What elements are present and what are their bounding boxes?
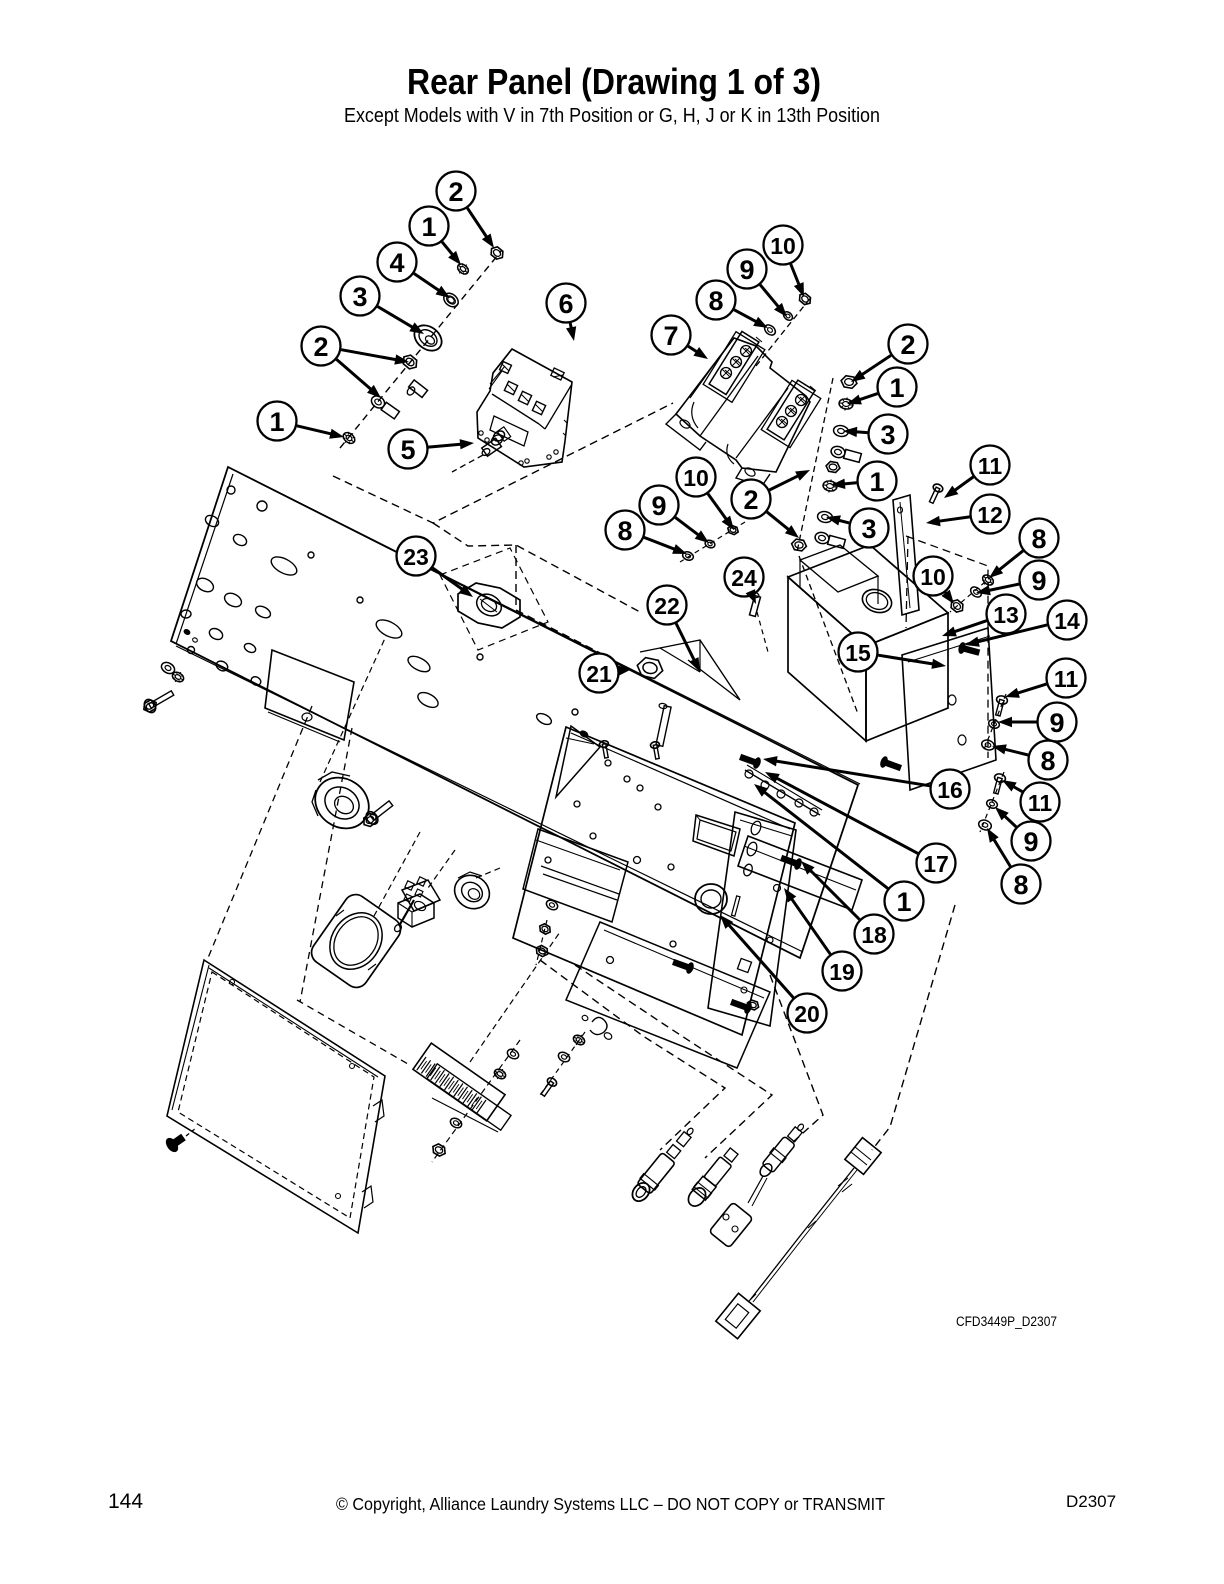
svg-text:10: 10 — [920, 564, 946, 590]
svg-text:D2307: D2307 — [1066, 1492, 1116, 1511]
svg-text:1: 1 — [421, 212, 436, 242]
svg-text:17: 17 — [923, 851, 949, 877]
svg-text:2: 2 — [743, 485, 758, 515]
svg-text:11: 11 — [978, 453, 1003, 479]
svg-text:8: 8 — [1040, 746, 1055, 776]
svg-text:9: 9 — [1023, 827, 1038, 857]
svg-text:4: 4 — [389, 248, 404, 278]
svg-text:CFD3449P_D2307: CFD3449P_D2307 — [956, 1314, 1057, 1329]
svg-text:23: 23 — [403, 544, 429, 570]
svg-text:24: 24 — [731, 565, 757, 591]
svg-text:6: 6 — [558, 289, 573, 319]
svg-text:Rear Panel (Drawing 1 of 3): Rear Panel (Drawing 1 of 3) — [407, 61, 821, 102]
svg-text:14: 14 — [1054, 608, 1080, 634]
svg-text:3: 3 — [861, 514, 876, 544]
svg-text:3: 3 — [352, 282, 367, 312]
svg-text:19: 19 — [829, 959, 855, 985]
svg-text:9: 9 — [739, 255, 754, 285]
svg-text:2: 2 — [448, 177, 463, 207]
svg-text:13: 13 — [993, 602, 1019, 628]
svg-text:11: 11 — [1028, 790, 1053, 816]
svg-text:8: 8 — [617, 516, 632, 546]
svg-text:2: 2 — [313, 332, 328, 362]
svg-text:8: 8 — [1031, 524, 1046, 554]
svg-text:3: 3 — [880, 420, 895, 450]
svg-text:Except Models with V in 7th Po: Except Models with V in 7th Position or … — [344, 105, 880, 127]
svg-text:© Copyright, Alliance Laundry: © Copyright, Alliance Laundry Systems LL… — [336, 1494, 885, 1514]
svg-text:20: 20 — [794, 1001, 820, 1027]
svg-text:7: 7 — [663, 321, 678, 351]
svg-text:8: 8 — [708, 286, 723, 316]
svg-text:5: 5 — [400, 435, 415, 465]
svg-text:144: 144 — [108, 1490, 143, 1513]
svg-text:1: 1 — [889, 373, 904, 403]
svg-text:21: 21 — [586, 661, 612, 687]
svg-text:10: 10 — [770, 233, 796, 259]
svg-text:9: 9 — [1031, 566, 1046, 596]
svg-text:1: 1 — [896, 887, 911, 917]
svg-text:22: 22 — [654, 593, 680, 619]
svg-text:10: 10 — [683, 465, 709, 491]
svg-text:1: 1 — [269, 407, 284, 437]
svg-text:9: 9 — [651, 491, 666, 521]
svg-text:12: 12 — [977, 502, 1003, 528]
svg-text:18: 18 — [861, 922, 887, 948]
svg-text:2: 2 — [900, 330, 915, 360]
svg-text:9: 9 — [1049, 708, 1064, 738]
svg-text:11: 11 — [1054, 666, 1079, 692]
svg-text:8: 8 — [1013, 870, 1028, 900]
svg-text:15: 15 — [845, 640, 871, 666]
svg-text:1: 1 — [869, 467, 884, 497]
svg-text:16: 16 — [937, 777, 963, 803]
